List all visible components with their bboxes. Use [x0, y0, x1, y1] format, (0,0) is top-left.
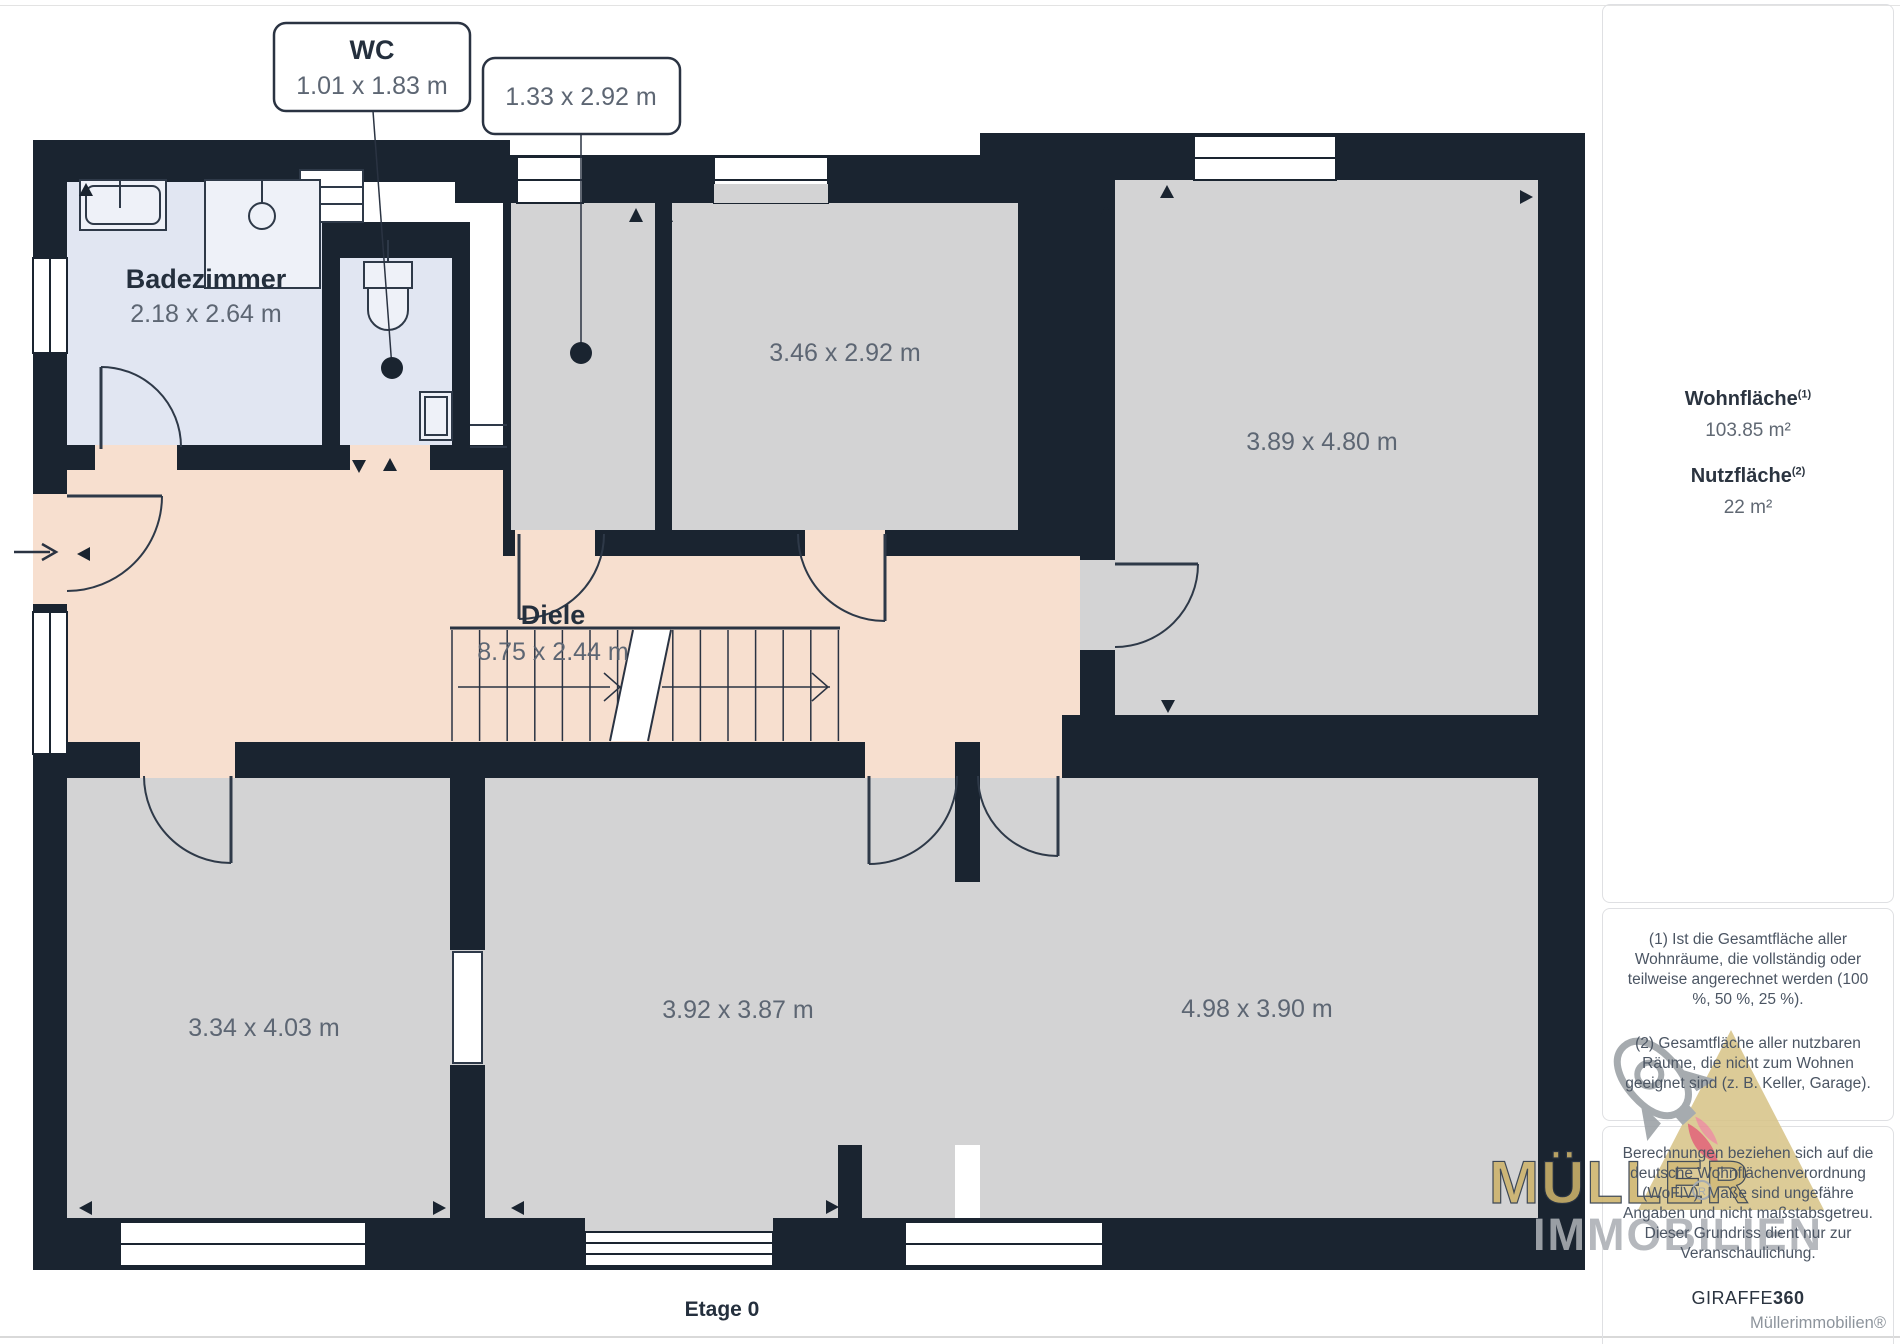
- nutzflaeche-label: Nutzfläche(2): [1691, 465, 1806, 488]
- room-334-floor: [67, 742, 450, 1218]
- disclaimer-card: Berechnungen beziehen sich auf die deuts…: [1602, 1126, 1894, 1344]
- window-left-diele: [33, 612, 67, 754]
- room-389-dim: 3.89 x 4.80 m: [1246, 428, 1397, 456]
- disclaimer-text: Berechnungen beziehen sich auf die deuts…: [1618, 1144, 1878, 1264]
- terrace-door-bottom: [585, 1218, 773, 1266]
- callout-133: 1.33 x 2.92 m: [483, 58, 680, 134]
- room-badezimmer-name: Badezimmer: [126, 264, 287, 294]
- window-bottom-right: [905, 1222, 1103, 1266]
- bathtub-icon: [80, 180, 166, 230]
- wohnflaeche-value: 103.85 m²: [1705, 420, 1791, 442]
- room-498-dim: 4.98 x 3.90 m: [1181, 995, 1332, 1023]
- room-floors: [67, 180, 1538, 1218]
- nutzflaeche-value: 22 m²: [1724, 497, 1773, 519]
- room-392-floor: [485, 742, 955, 1218]
- room-346-dim: 3.46 x 2.92 m: [769, 339, 920, 367]
- window-top-389: [1194, 136, 1336, 180]
- floorplan-page: WC 1.01 x 1.83 m 1.33 x 2.92 m Badezimme…: [0, 0, 1900, 1344]
- callout-wc-title: WC: [350, 35, 395, 65]
- giraffe360-logo: GIRAFFE360: [1603, 1288, 1893, 1309]
- room-392-dim: 3.92 x 3.87 m: [662, 996, 813, 1024]
- room-diele-dim: 8.75 x 2.44 m: [477, 638, 628, 666]
- room-346-floor: [672, 203, 1018, 556]
- room-small-133-floor: [509, 203, 655, 556]
- callout-wc-dim: 1.01 x 1.83 m: [296, 72, 447, 100]
- window-top-346: [714, 157, 828, 203]
- room-diele-name: Diele: [521, 600, 586, 630]
- door-pocket-334-392: [453, 952, 482, 1063]
- window-bottom-left: [120, 1222, 366, 1266]
- footnote-2: (2) Gesamtfläche aller nutzbaren Räume, …: [1622, 1034, 1874, 1094]
- sink-icon: [420, 392, 452, 440]
- floorplan-drawing: WC 1.01 x 1.83 m 1.33 x 2.92 m Badezimme…: [0, 0, 1600, 1344]
- callout-wc: WC 1.01 x 1.83 m: [274, 23, 470, 111]
- wohnflaeche-label: Wohnfläche(1): [1685, 388, 1811, 411]
- window-left-bath: [33, 258, 67, 353]
- callout-133-dim: 1.33 x 2.92 m: [505, 83, 656, 111]
- room-334-dim: 3.34 x 4.03 m: [188, 1014, 339, 1042]
- floor-level-label: Etage 0: [622, 1298, 822, 1322]
- room-badezimmer-dim: 2.18 x 2.64 m: [130, 300, 281, 328]
- footnotes-card: (1) Ist die Gesamtfläche aller Wohnräume…: [1602, 908, 1894, 1121]
- area-summary-card: Wohnfläche(1) 103.85 m² Nutzfläche(2) 22…: [1602, 4, 1894, 903]
- footnote-1: (1) Ist die Gesamtfläche aller Wohnräume…: [1622, 930, 1874, 1010]
- window-top-small-room: [517, 157, 583, 203]
- brand-footer-label: Müllerimmobilien®: [1750, 1314, 1886, 1333]
